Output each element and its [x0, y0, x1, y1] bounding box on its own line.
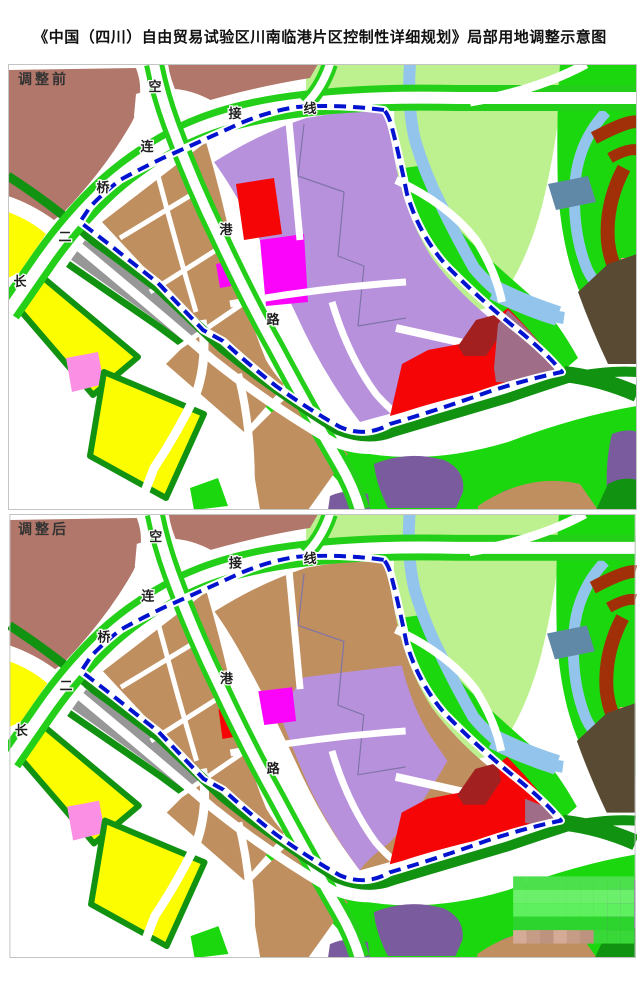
watermark-cell [527, 917, 540, 930]
road-label: 二 [58, 229, 71, 244]
road-label: 接 [228, 106, 241, 121]
road-label: 接 [229, 556, 242, 571]
watermark-cell [621, 890, 634, 903]
road-label: 空 [148, 79, 161, 94]
watermark-cell [540, 876, 553, 889]
watermark-cell [607, 876, 620, 889]
watermark-cell [621, 903, 634, 916]
watermark-cell [513, 903, 526, 916]
watermark-cell [621, 930, 634, 943]
watermark-cell [553, 876, 566, 889]
watermark-cell [607, 930, 620, 943]
road-label: 港 [220, 671, 234, 686]
map-panel-after: 调整后 空港路长二桥连接线 [8, 514, 637, 958]
watermark-cell [607, 890, 620, 903]
watermark-cell [567, 903, 580, 916]
road-label: 路 [267, 761, 281, 776]
road-label: 桥 [96, 180, 110, 195]
watermark-cell [607, 917, 620, 930]
watermark-cell [594, 917, 607, 930]
watermark-cell [513, 930, 526, 943]
watermark-cell [594, 876, 607, 889]
watermark-cell [594, 903, 607, 916]
watermark-cell [567, 890, 580, 903]
watermark-cell [621, 876, 634, 889]
watermark-cell [527, 876, 540, 889]
road-label: 路 [266, 312, 280, 327]
watermark-cell [540, 903, 553, 916]
watermark-cell [580, 930, 593, 943]
watermark-cell [594, 930, 607, 943]
map-panel-before: 调整前 空港路长二桥连接线 [8, 64, 637, 510]
watermark-cell [513, 876, 526, 889]
watermark-cell [553, 890, 566, 903]
watermark-cell [567, 917, 580, 930]
watermark-cell [567, 876, 580, 889]
watermark-cell [540, 930, 553, 943]
page-title: 《中国（四川）自由贸易试验区川南临港片区控制性详细规划》局部用地调整示意图 [0, 0, 640, 47]
watermark-cell [527, 930, 540, 943]
watermark-cell [513, 917, 526, 930]
purple-parcel [374, 904, 463, 956]
watermark-cell [580, 917, 593, 930]
purple-parcel [374, 456, 463, 508]
watermark-cell [580, 903, 593, 916]
watermark-cell [527, 903, 540, 916]
watermark-cell [607, 903, 620, 916]
road-label: 桥 [98, 629, 111, 644]
land-use-adjustment-diagram: 《中国（四川）自由贸易试验区川南临港片区控制性详细规划》局部用地调整示意图 调整… [0, 0, 640, 984]
watermark-cell [553, 930, 566, 943]
watermark-cell [580, 890, 593, 903]
watermark-cell [594, 890, 607, 903]
watermark-cell [621, 917, 634, 930]
watermark-cell [527, 890, 540, 903]
watermark-cell [540, 917, 553, 930]
road-label: 空 [149, 529, 162, 544]
watermark-cell [540, 890, 553, 903]
road-label: 长 [13, 274, 27, 289]
panel-label-after: 调整后 [18, 519, 69, 539]
road-label: 线 [303, 101, 316, 116]
land-use-map-after: 空港路长二桥连接线 [8, 514, 637, 958]
road-label: 二 [60, 678, 73, 693]
road-label: 线 [304, 551, 317, 566]
watermark-cell [513, 890, 526, 903]
magenta-parcel [258, 687, 296, 725]
watermark-mosaic [513, 876, 634, 943]
panel-label-before: 调整前 [18, 69, 69, 89]
road-label: 连 [141, 589, 155, 604]
watermark-cell [580, 876, 593, 889]
watermark-cell [553, 903, 566, 916]
red-parcel [236, 178, 282, 240]
road-label: 长 [15, 723, 29, 738]
watermark-cell [553, 917, 566, 930]
land-use-map-before: 空港路长二桥连接线 [8, 64, 637, 510]
road-label: 连 [140, 139, 154, 154]
road-label: 港 [219, 222, 233, 237]
watermark-cell [567, 930, 580, 943]
